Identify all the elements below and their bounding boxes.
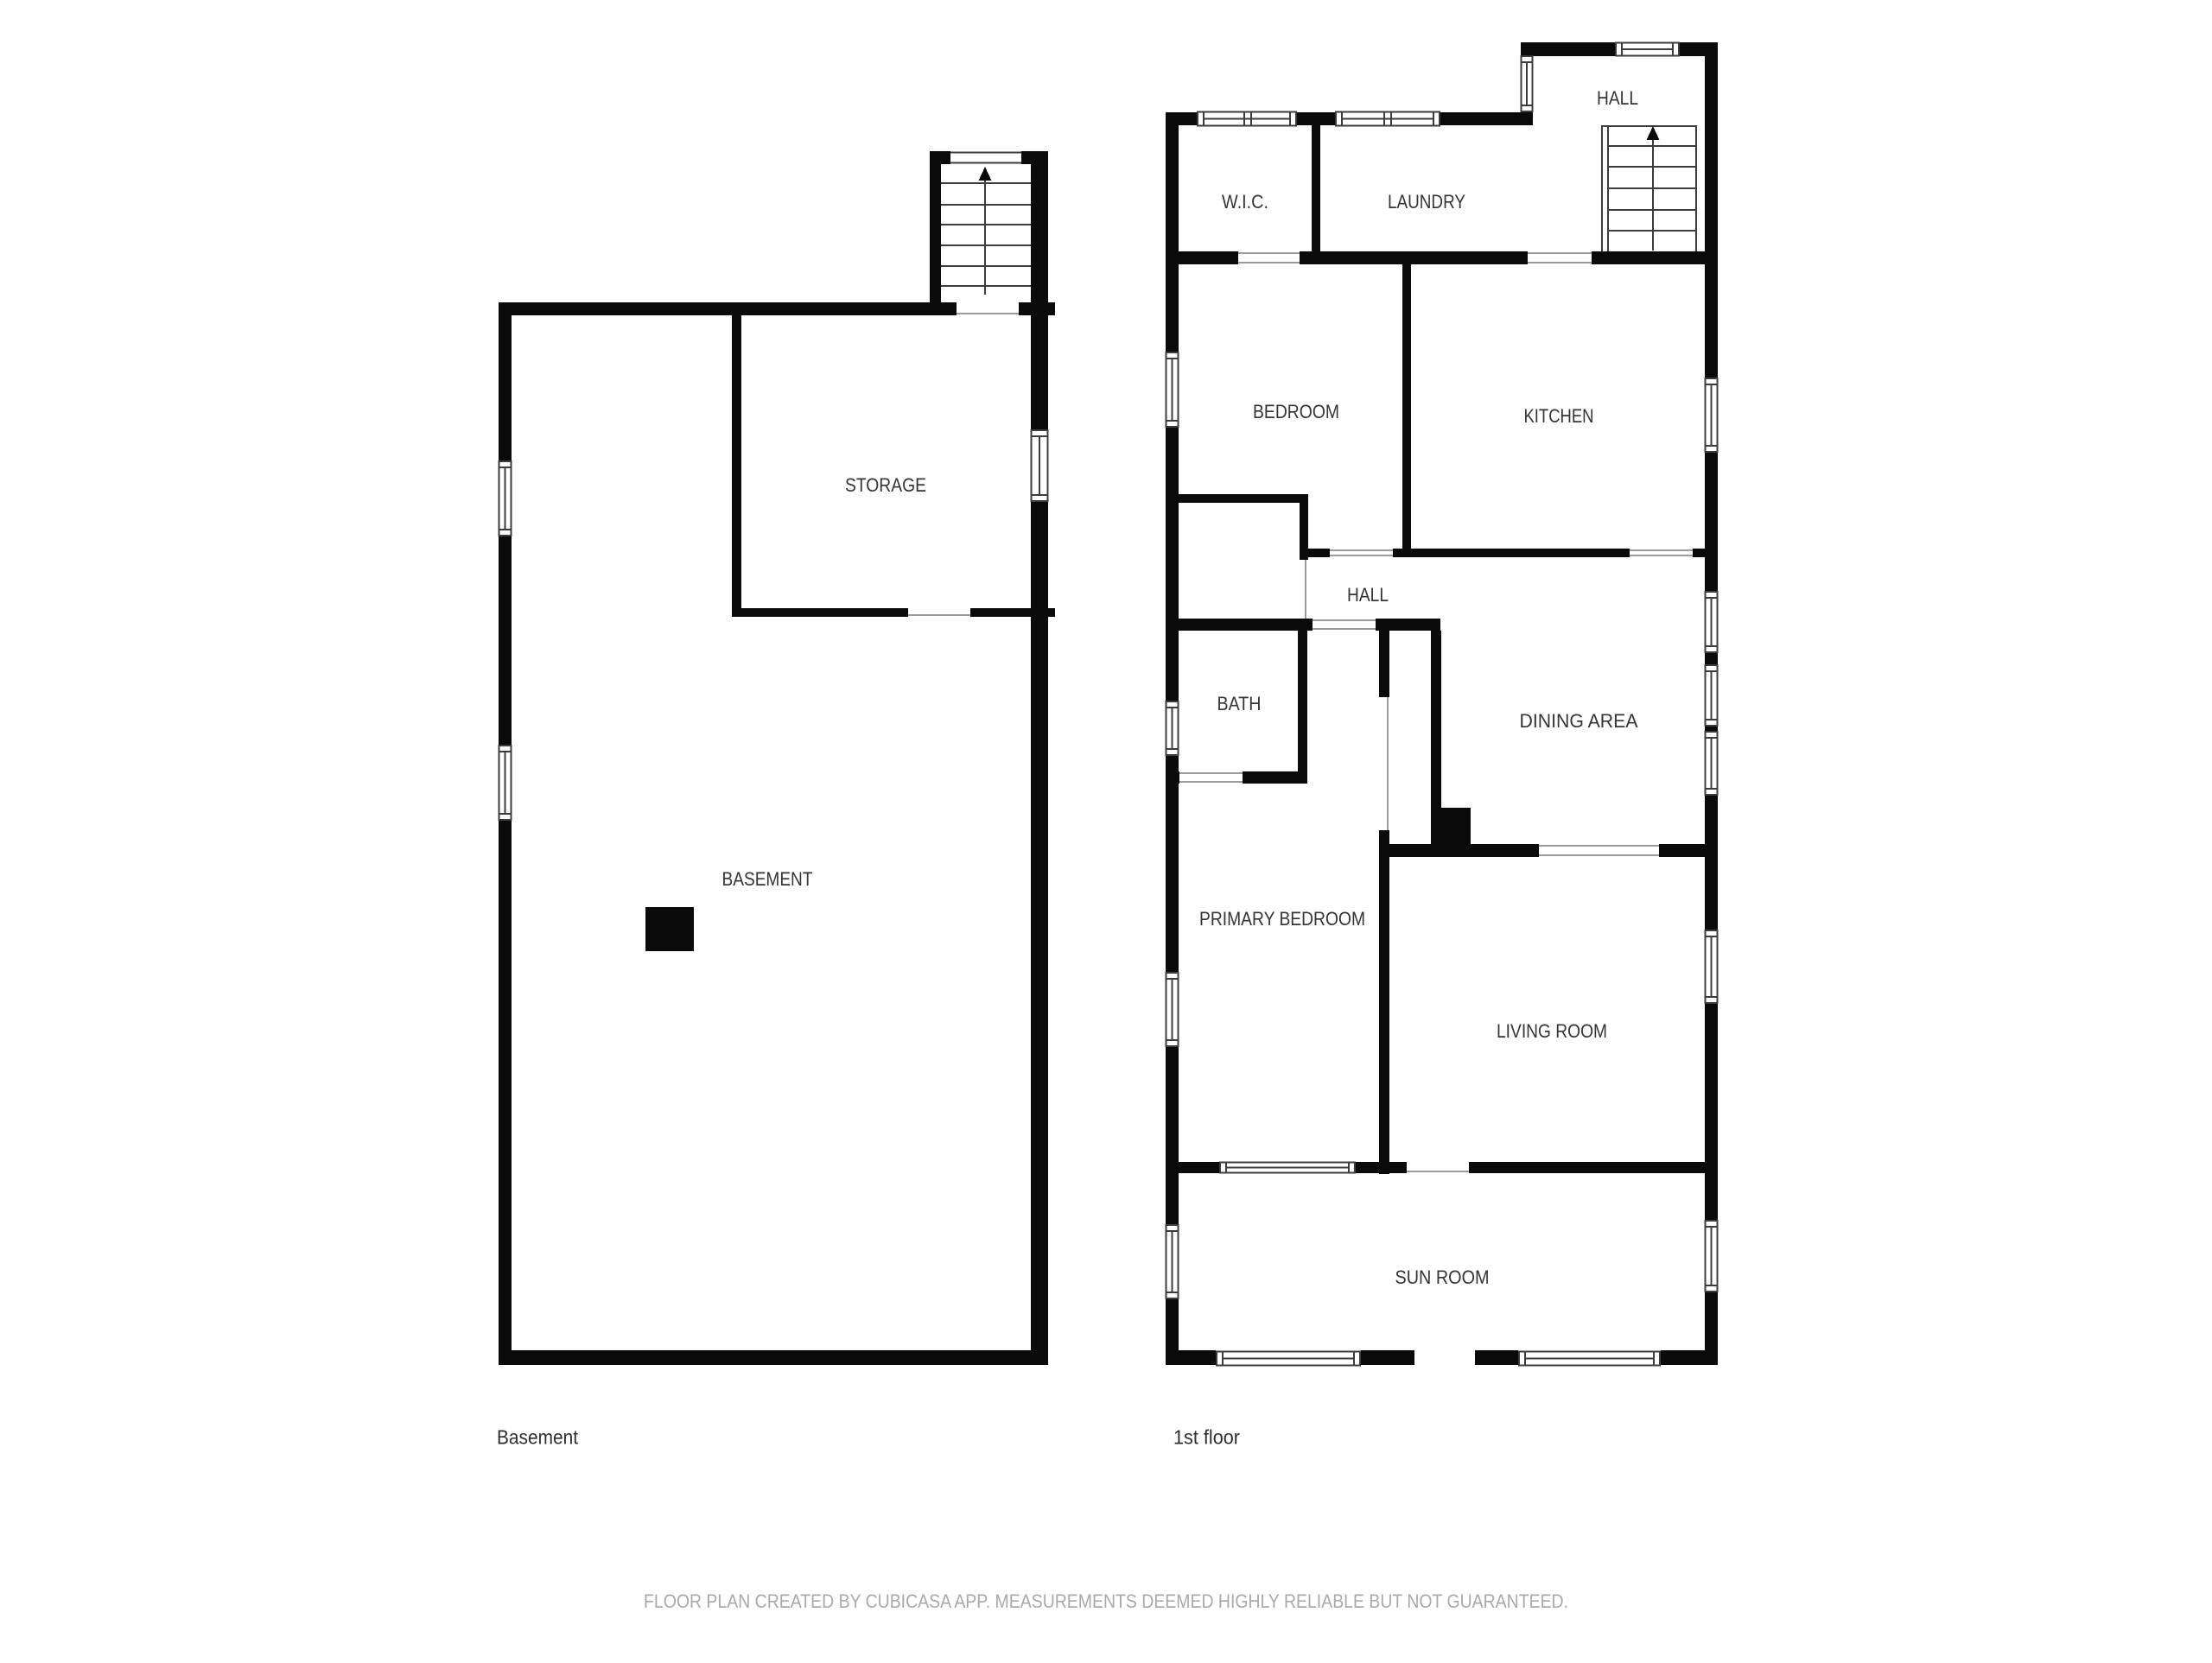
svg-text:BEDROOM: BEDROOM [1253,401,1339,422]
svg-text:BASEMENT: BASEMENT [722,868,813,890]
svg-text:FLOOR PLAN CREATED BY CUBICASA: FLOOR PLAN CREATED BY CUBICASA APP. MEAS… [644,1590,1568,1612]
svg-text:W.I.C.: W.I.C. [1222,191,1268,213]
svg-text:LAUNDRY: LAUNDRY [1388,191,1465,213]
svg-text:KITCHEN: KITCHEN [1524,405,1594,427]
svg-text:STORAGE: STORAGE [845,474,926,496]
svg-text:1st floor: 1st floor [1173,1425,1240,1448]
svg-text:HALL: HALL [1597,87,1638,109]
svg-text:HALL: HALL [1347,584,1389,606]
svg-text:SUN ROOM: SUN ROOM [1395,1266,1490,1288]
svg-text:Basement: Basement [497,1425,579,1448]
svg-text:DINING AREA: DINING AREA [1520,710,1638,732]
svg-text:BATH: BATH [1217,693,1262,714]
svg-text:LIVING ROOM: LIVING ROOM [1497,1020,1607,1042]
svg-text:PRIMARY BEDROOM: PRIMARY BEDROOM [1199,908,1365,930]
